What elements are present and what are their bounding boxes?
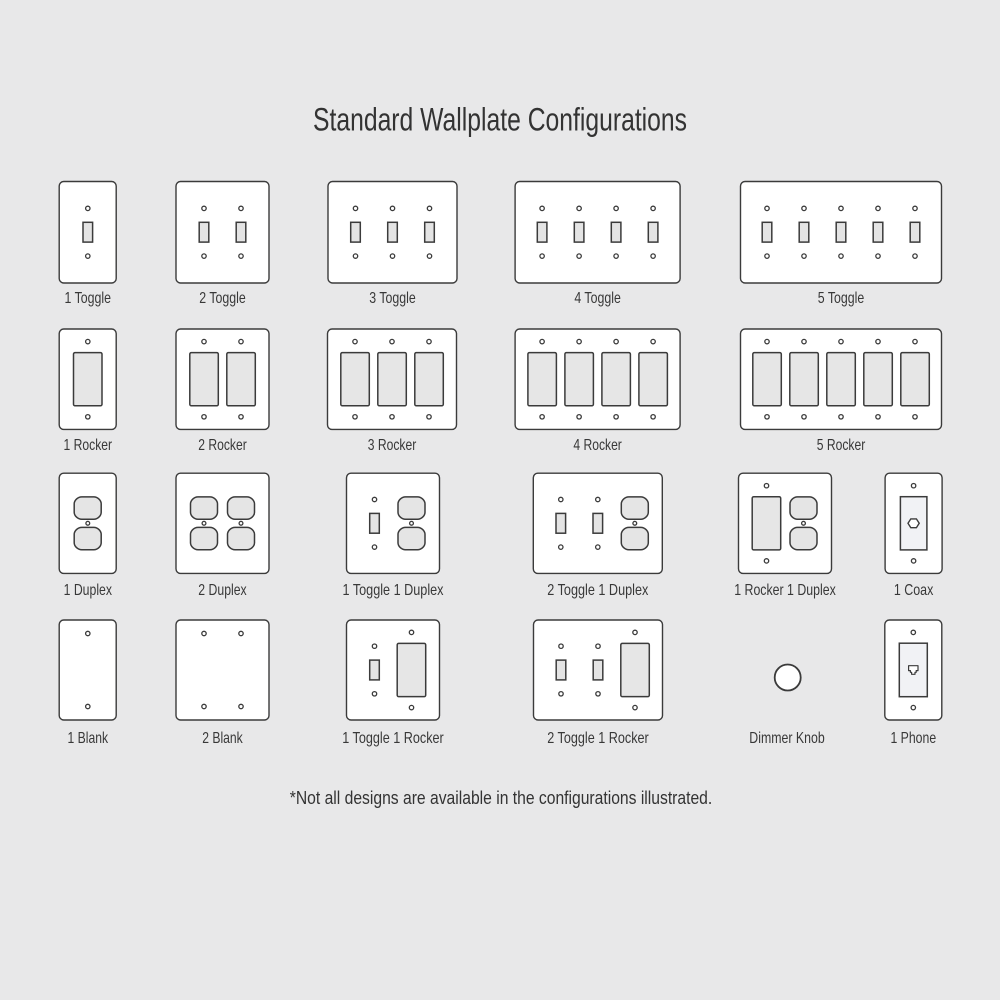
svg-text:4 Toggle: 4 Toggle	[574, 290, 621, 307]
svg-text:1 Duplex: 1 Duplex	[64, 582, 112, 599]
svg-text:5 Rocker: 5 Rocker	[817, 437, 866, 454]
svg-text:2 Toggle 1 Rocker: 2 Toggle 1 Rocker	[547, 730, 649, 747]
svg-text:1 Toggle 1 Rocker: 1 Toggle 1 Rocker	[342, 730, 444, 747]
svg-text:1 Phone: 1 Phone	[890, 730, 936, 747]
svg-text:3 Toggle: 3 Toggle	[369, 290, 416, 307]
svg-text:2 Blank: 2 Blank	[202, 730, 243, 747]
svg-text:1 Rocker: 1 Rocker	[64, 437, 113, 454]
svg-text:2 Toggle 1 Duplex: 2 Toggle 1 Duplex	[547, 582, 648, 599]
svg-text:1 Blank: 1 Blank	[68, 730, 109, 747]
svg-text:2 Duplex: 2 Duplex	[198, 582, 246, 599]
svg-text:1 Rocker 1 Duplex: 1 Rocker 1 Duplex	[734, 582, 836, 599]
svg-text:Dimmer Knob: Dimmer Knob	[749, 730, 824, 747]
svg-text:Standard Wallplate Configurati: Standard Wallplate Configurations	[313, 102, 687, 138]
svg-text:1 Toggle: 1 Toggle	[65, 290, 112, 307]
svg-text:5 Toggle: 5 Toggle	[818, 290, 865, 307]
svg-text:1 Coax: 1 Coax	[894, 582, 933, 599]
svg-text:2 Rocker: 2 Rocker	[198, 437, 247, 454]
svg-text:4 Rocker: 4 Rocker	[573, 437, 622, 454]
svg-text:3 Rocker: 3 Rocker	[368, 437, 417, 454]
svg-text:*Not all designs are available: *Not all designs are available in the co…	[290, 788, 713, 808]
svg-text:1 Toggle 1 Duplex: 1 Toggle 1 Duplex	[343, 582, 444, 599]
svg-text:2 Toggle: 2 Toggle	[199, 290, 246, 307]
